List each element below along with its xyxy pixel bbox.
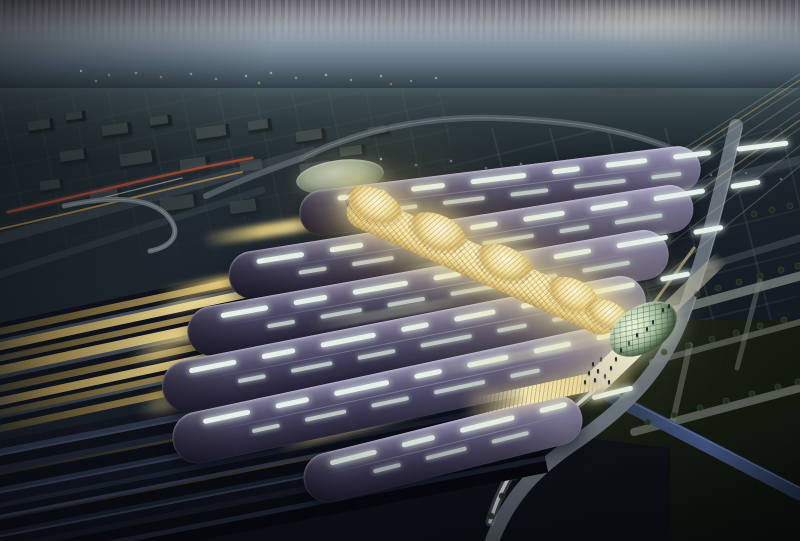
pedestrian (584, 380, 586, 384)
skylight-dash (510, 188, 548, 197)
skylight-dash (605, 158, 647, 168)
tree (787, 203, 793, 209)
tree (715, 285, 721, 291)
skylight-dash (651, 172, 681, 180)
skylight-dash (411, 183, 445, 192)
skylight-dash (401, 435, 435, 448)
tree (723, 398, 729, 404)
pedestrian (652, 320, 654, 324)
skylight-dash (401, 322, 429, 332)
pedestrian (628, 341, 630, 345)
skylight-dash (510, 368, 540, 378)
pedestrian (646, 327, 648, 331)
skylight-dash (523, 210, 565, 222)
skylight-dash (261, 348, 295, 359)
skylight-dash (293, 295, 327, 306)
tree (781, 317, 787, 323)
skylight-dash (539, 402, 567, 414)
skylight-dash (291, 361, 333, 373)
skylight-dash (582, 261, 630, 273)
skylight-dash (275, 397, 309, 409)
pedestrian (592, 362, 594, 366)
skylight-dash (559, 225, 589, 234)
skylight-dash (454, 309, 496, 322)
water-canal-edge (612, 392, 800, 488)
pedestrian (662, 308, 664, 312)
tree (749, 391, 755, 397)
skylight-dash (460, 415, 516, 433)
skylight-dash (329, 242, 363, 252)
skylight-dash (574, 178, 626, 188)
pedestrian (608, 380, 610, 384)
tree (775, 384, 781, 390)
skylight-dash (590, 200, 628, 211)
skylight-dash (615, 213, 663, 224)
skylight-dash (470, 173, 526, 185)
pedestrian (594, 378, 596, 382)
pedestrian (636, 333, 638, 337)
skylight-dash (373, 463, 401, 474)
pedestrian (668, 304, 670, 308)
pedestrian (620, 348, 622, 352)
skylight-dash (371, 396, 409, 408)
tree (661, 349, 667, 355)
skylight-dash (220, 305, 268, 318)
tree (778, 267, 784, 273)
skylight-dash (553, 248, 591, 260)
skylight-dash (357, 349, 395, 360)
pedestrian (604, 374, 606, 378)
tree (751, 211, 757, 217)
skylight-dash (420, 334, 472, 348)
pedestrian (600, 357, 602, 361)
tree (685, 343, 691, 349)
skylight-dash (252, 424, 280, 434)
skylight-dash (238, 374, 266, 383)
render-canvas (0, 0, 800, 541)
tree (736, 279, 742, 285)
tree (795, 379, 800, 385)
skylight-dash (267, 320, 295, 329)
tree (769, 207, 775, 213)
tree (709, 336, 715, 342)
skylight-dash (497, 323, 527, 333)
pedestrian (588, 371, 590, 375)
tree (795, 263, 800, 269)
skylight-dash (443, 196, 485, 205)
tree (757, 323, 763, 329)
skylight-dash (298, 266, 326, 274)
pedestrian (615, 357, 617, 361)
skylight-dash (203, 410, 251, 425)
skylight-dash (491, 431, 529, 444)
skylight-dash (552, 166, 580, 174)
skylight-dash (305, 409, 347, 422)
tree (733, 330, 739, 336)
skylight-dash (616, 235, 668, 249)
tree (645, 419, 651, 425)
skylight-dash (469, 221, 497, 230)
pedestrian (597, 369, 599, 373)
tree (697, 405, 703, 411)
tree (757, 273, 763, 279)
skylight-dash (256, 251, 304, 263)
skylight-dash (352, 256, 394, 267)
tree (671, 412, 677, 418)
skylight-dash (189, 360, 237, 374)
pedestrian (610, 366, 612, 370)
